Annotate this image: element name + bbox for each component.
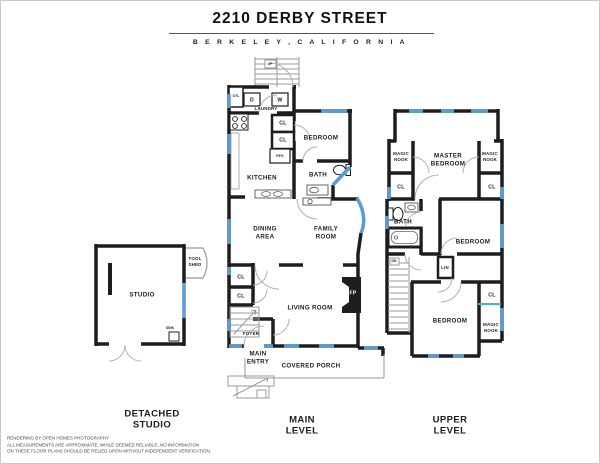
- room-label-foyer: FOYER: [243, 331, 259, 337]
- room-label-entry: MAIN ENTRY: [247, 350, 269, 366]
- studio-double-door-arcs: [109, 345, 141, 361]
- room-label-closet-right: CL: [488, 184, 495, 191]
- main-level-plan: [228, 57, 384, 398]
- entry-steps: [228, 376, 274, 398]
- room-label-closet-hall-1: CL: [279, 120, 286, 127]
- stove-icon: [230, 114, 248, 130]
- main-level-walls: [229, 85, 384, 356]
- room-label-sink: SINK: [166, 326, 174, 330]
- room-label-master: MASTER BEDROOM: [431, 152, 466, 168]
- studio-sink-icon: [169, 332, 179, 341]
- room-label-living: LIVING ROOM: [287, 304, 332, 312]
- caption-main-level: MAIN LEVEL: [286, 415, 319, 438]
- caption-detached-studio: DETACHED STUDIO: [124, 409, 179, 432]
- room-label-linen: LIN: [441, 265, 449, 271]
- disclaimer-line-1: RENDERING BY OPEN HOMES PHOTOGRAPHY: [7, 436, 109, 441]
- room-label-bath-main: BATH: [309, 171, 327, 179]
- room-label-magic-nook-left: MAGIC NOOK: [393, 151, 409, 162]
- family-counter: [303, 198, 331, 205]
- room-label-bedroom-main: BEDROOM: [304, 134, 339, 142]
- upper-stairs: [388, 257, 409, 333]
- floorplan-graphics: [1, 1, 600, 464]
- room-label-closet-low: CL: [488, 292, 495, 299]
- room-label-closet-living-2: CL: [237, 293, 244, 300]
- sink-icon-upper: [405, 203, 418, 212]
- room-label-kitchen: KITCHEN: [247, 174, 277, 182]
- room-label-stairs-up: UP: [268, 62, 273, 66]
- room-label-closet-living-1: CL: [237, 274, 244, 281]
- room-label-closet-hall-2: CL: [279, 137, 286, 144]
- vanity-sink-icon-main: [307, 185, 328, 195]
- room-label-studio: STUDIO: [129, 291, 154, 299]
- room-label-fireplace: FP: [350, 290, 357, 297]
- room-label-closet-left: CL: [397, 184, 404, 191]
- bathtub-icon: [388, 228, 421, 247]
- room-label-washer: W: [277, 97, 282, 104]
- room-label-bedroom-low: BEDROOM: [433, 317, 468, 325]
- room-label-family: FAMILY ROOM: [314, 225, 338, 241]
- room-label-dining: DINING AREA: [253, 225, 277, 241]
- room-label-porch: COVERED PORCH: [282, 362, 341, 370]
- room-label-stairs-down: DN: [391, 259, 396, 263]
- room-label-utl: UTL: [233, 94, 240, 98]
- room-label-magic-nook-right: MAGIC NOOK: [482, 151, 498, 162]
- caption-upper-level: UPPER LEVEL: [433, 415, 468, 438]
- disclaimer-line-3: ON THESE FLOOR PLANS SHOULD BE RELIED UP…: [7, 449, 211, 454]
- room-label-tool-shed: TOOL SHED: [188, 256, 201, 267]
- room-label-refrigerator: RFG: [276, 154, 283, 158]
- room-label-laundry: LAUNDRY: [255, 106, 278, 112]
- room-label-bedroom-mid: BEDROOM: [456, 238, 491, 246]
- floorplan-sheet: 2210 DERBY STREET B E R K E L E Y , C A …: [0, 0, 600, 464]
- studio-partition-wall: [108, 263, 112, 295]
- kitchen-sink-icon: [255, 190, 291, 198]
- room-label-bath-upper: BATH: [394, 218, 412, 226]
- room-label-dryer: D: [250, 97, 254, 104]
- room-label-magic-nook-low: MAGIC NOOK: [483, 322, 499, 333]
- disclaimer-line-2: ALL MEASUREMENTS ARE APPROXIMATE. WHILE …: [7, 443, 199, 448]
- kitchen-counter: [231, 133, 239, 189]
